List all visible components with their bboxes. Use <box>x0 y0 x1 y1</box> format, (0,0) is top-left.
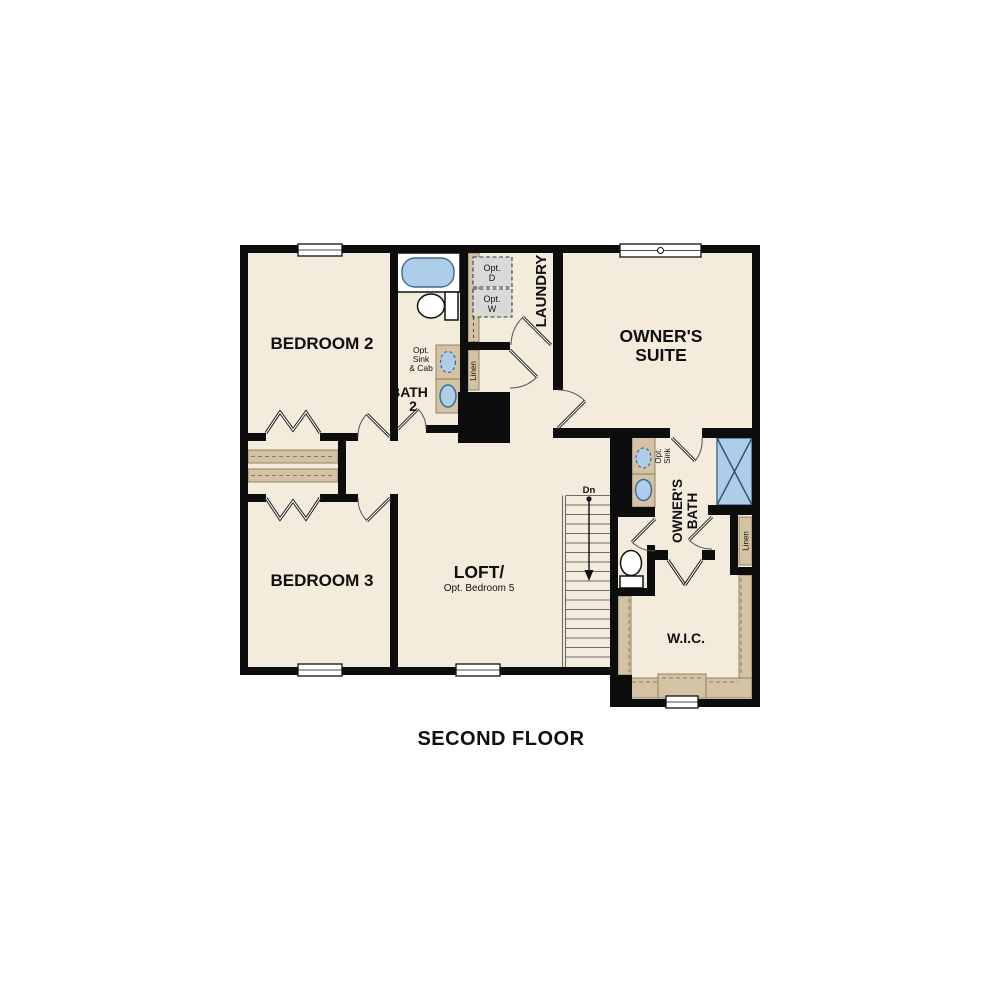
svg-text:Opt.: Opt. <box>483 263 500 273</box>
shower <box>717 438 752 505</box>
window-bedroom3 <box>298 664 342 676</box>
optional-sink <box>636 448 651 468</box>
bathtub <box>396 253 460 292</box>
sink <box>636 480 652 501</box>
owners-bath-vanity <box>632 437 655 507</box>
bath2-vanity <box>436 345 461 413</box>
loft-label: LOFT/ <box>454 562 505 582</box>
svg-text:W: W <box>488 304 497 314</box>
svg-text:SUITE: SUITE <box>635 345 687 365</box>
linen-owners-label: Linen <box>742 531 751 551</box>
svg-text:LAUNDRY: LAUNDRY <box>533 255 550 328</box>
egress-marker <box>658 248 664 254</box>
toilet-bath2 <box>418 292 459 320</box>
svg-text:BATH: BATH <box>685 493 700 530</box>
floor-plan: BEDROOM 2 BEDROOM 3 OWNER'S SUITE LOFT/ … <box>0 0 1000 1000</box>
wic-label: W.I.C. <box>667 630 705 646</box>
bedroom2-label: BEDROOM 2 <box>271 334 374 353</box>
linen-bath-label: Linen <box>469 361 478 381</box>
window-wic <box>666 696 698 708</box>
bedroom3-label: BEDROOM 3 <box>271 571 374 590</box>
sink <box>440 385 456 407</box>
optional-sink <box>441 352 456 373</box>
window-bedroom2 <box>298 244 342 256</box>
stairs-dn-label: Dn <box>583 485 596 496</box>
svg-text:2: 2 <box>409 398 417 414</box>
toilet-owners <box>620 551 643 589</box>
svg-text:Opt. Bedroom 5: Opt. Bedroom 5 <box>444 583 515 594</box>
svg-text:Opt.: Opt. <box>483 294 500 304</box>
svg-text:Opt.: Opt. <box>654 448 663 463</box>
svg-text:D: D <box>489 273 496 283</box>
laundry-label: LAUNDRY <box>533 255 550 328</box>
floor-plan-page: BEDROOM 2 BEDROOM 3 OWNER'S SUITE LOFT/ … <box>0 0 1000 1000</box>
svg-text:Linen: Linen <box>742 531 751 551</box>
svg-text:OWNER'S: OWNER'S <box>670 479 685 543</box>
window-loft <box>456 664 500 676</box>
svg-text:& Cab: & Cab <box>409 363 433 373</box>
window-owners-suite <box>620 244 701 257</box>
opt-sink-note: Opt. Sink <box>654 447 672 464</box>
owners-suite-label: OWNER'S <box>620 326 703 346</box>
svg-text:Sink: Sink <box>663 447 672 464</box>
floor-title: SECOND FLOOR <box>417 728 584 750</box>
svg-text:Linen: Linen <box>469 361 478 381</box>
